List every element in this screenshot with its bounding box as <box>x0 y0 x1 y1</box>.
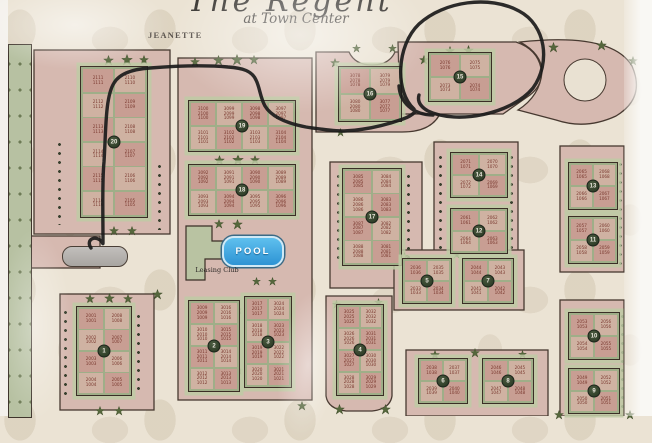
shrub-dots <box>406 172 411 262</box>
building-6: 203810382037103720391039204010406 <box>418 358 468 404</box>
building-15: 2076107620751075207310732074107415 <box>428 52 492 102</box>
building-number-badge: 20 <box>108 136 121 149</box>
building-number-badge: 11 <box>587 234 600 247</box>
unit-stack: 302520251025 <box>339 307 359 327</box>
shrub-dots <box>336 172 341 262</box>
unit-stack: 21061106 <box>115 167 145 190</box>
building-14: 2071107120701070207210722069106914 <box>450 152 508 198</box>
unit-stack: 302120211021 <box>269 365 289 385</box>
building-11: 2057105720601060205810582059105911 <box>568 216 618 264</box>
unit-stack: 302020201020 <box>247 365 267 385</box>
shrub-dots <box>438 153 443 255</box>
unit-stack: 309620961096 <box>269 191 293 213</box>
shrub-dots <box>620 312 625 410</box>
unit-stack: 20041004 <box>79 373 103 393</box>
shrub-dots <box>157 162 162 230</box>
building-8: 204610462045104520471047204810488 <box>482 358 534 404</box>
building-number-badge: 5 <box>421 275 434 288</box>
unit-stack: 302920291029 <box>361 373 381 393</box>
building-number-badge: 13 <box>587 180 600 193</box>
unit-stack: 308120811081 <box>373 241 399 263</box>
unit-stack: 21111111 <box>83 69 113 92</box>
unit-stack: 310121011101 <box>191 127 215 149</box>
building-3: 3017201710173024202410243018201810183023… <box>244 296 292 388</box>
building-number-badge: 2 <box>208 340 221 353</box>
unit-stack: 21051105 <box>115 192 145 215</box>
building-16: 3078207810783079207910793080208010803077… <box>338 66 402 122</box>
building-20: 2111111121101110211211122109110921131113… <box>80 66 148 218</box>
unit-stack: 20081008 <box>105 309 129 329</box>
shrub-dots <box>618 160 623 268</box>
building-number-badge: 16 <box>364 88 377 101</box>
unit-stack: 301720171017 <box>247 299 267 319</box>
unit-stack: 308820881088 <box>345 241 371 263</box>
unit-stack: 21101110 <box>115 69 145 92</box>
unit-stack: 309220921092 <box>191 167 215 189</box>
site-map-photo: { "header": { "title_script": "The Regen… <box>0 0 652 416</box>
building-number-badge: 12 <box>473 225 486 238</box>
building-17: 3085208510853084208410843086208610863083… <box>342 168 402 266</box>
shrub-dots <box>509 153 514 255</box>
building-number-badge: 8 <box>502 375 515 388</box>
building-13: 2065106520681068206610662067106713 <box>568 162 618 210</box>
unit-stack: 307720771077 <box>371 95 399 119</box>
building-number-badge: 18 <box>236 184 249 197</box>
building-19: 3100210011003099209910993098209810983097… <box>188 100 296 152</box>
building-10: 2053105320561056205410542055105510 <box>568 312 620 360</box>
unit-stack: 21121112 <box>83 94 113 117</box>
shrub-dots <box>57 140 62 225</box>
pool: POOL <box>222 236 284 267</box>
building-4: 3025202510253032203210323026202610263031… <box>336 304 384 396</box>
shrub-dots <box>136 312 141 396</box>
unit-stack: 20011001 <box>79 309 103 329</box>
unit-stack: 301220121012 <box>191 369 213 389</box>
building-number-badge: 10 <box>588 330 601 343</box>
building-5: 203610362035103520331033203410345 <box>402 258 452 304</box>
building-number-badge: 4 <box>354 344 367 357</box>
unit-stack: 300920091009 <box>191 303 213 323</box>
building-number-badge: 19 <box>236 120 249 133</box>
unit-stack: 308420841084 <box>373 171 399 193</box>
building-12: 2061106120621062206410642063106312 <box>450 208 508 254</box>
building-number-badge: 14 <box>473 169 486 182</box>
pool-label: POOL <box>236 246 271 257</box>
building-2: 3009200910093016201610163010201010103015… <box>188 300 240 392</box>
building-number-badge: 9 <box>588 385 601 398</box>
unit-stack: 21091109 <box>115 94 145 117</box>
unit-stack: 310021001100 <box>191 103 215 125</box>
building-number-badge: 17 <box>366 211 379 224</box>
building-7: 204410442043104320411041204210427 <box>462 258 514 304</box>
unit-stack: 301320131013 <box>215 369 237 389</box>
unit-stack: 302420241024 <box>269 299 289 319</box>
fountain-capsule <box>62 246 128 267</box>
landscape-strip <box>8 44 32 418</box>
building-number-badge: 3 <box>262 336 275 349</box>
unit-stack: 21151115 <box>83 167 113 190</box>
building-number-badge: 6 <box>437 375 450 388</box>
street-label-jeanette: JEANETTE <box>148 30 202 40</box>
unit-stack: 309720971097 <box>269 103 293 125</box>
north-label: N <box>1 7 6 14</box>
unit-stack: 303220321032 <box>361 307 381 327</box>
unit-stack: 21161116 <box>83 192 113 215</box>
building-number-badge: 1 <box>98 345 111 358</box>
unit-stack: 310421041104 <box>269 127 293 149</box>
unit-stack: 302820281028 <box>339 373 359 393</box>
building-18: 3092209210923091209110913090209010903089… <box>188 164 296 216</box>
cul-de-sac-island <box>564 59 606 101</box>
building-1: 2001100120081008200210022007100720031003… <box>76 306 132 396</box>
building-number-badge: 7 <box>482 275 495 288</box>
unit-stack: 20051005 <box>105 373 129 393</box>
building-9: 204910492052105220501050205110519 <box>568 368 620 414</box>
unit-stack: 308920891089 <box>269 167 293 189</box>
unit-stack: 301620161016 <box>215 303 237 323</box>
leasing-club-label: Leasing Club <box>184 266 250 274</box>
shrub-dots <box>63 308 68 400</box>
map-subtitle: at Town Center <box>196 11 396 27</box>
unit-stack: 21071107 <box>115 143 145 166</box>
unit-stack: 308520851085 <box>345 171 371 193</box>
building-number-badge: 15 <box>454 71 467 84</box>
unit-stack: 309320931093 <box>191 191 215 213</box>
